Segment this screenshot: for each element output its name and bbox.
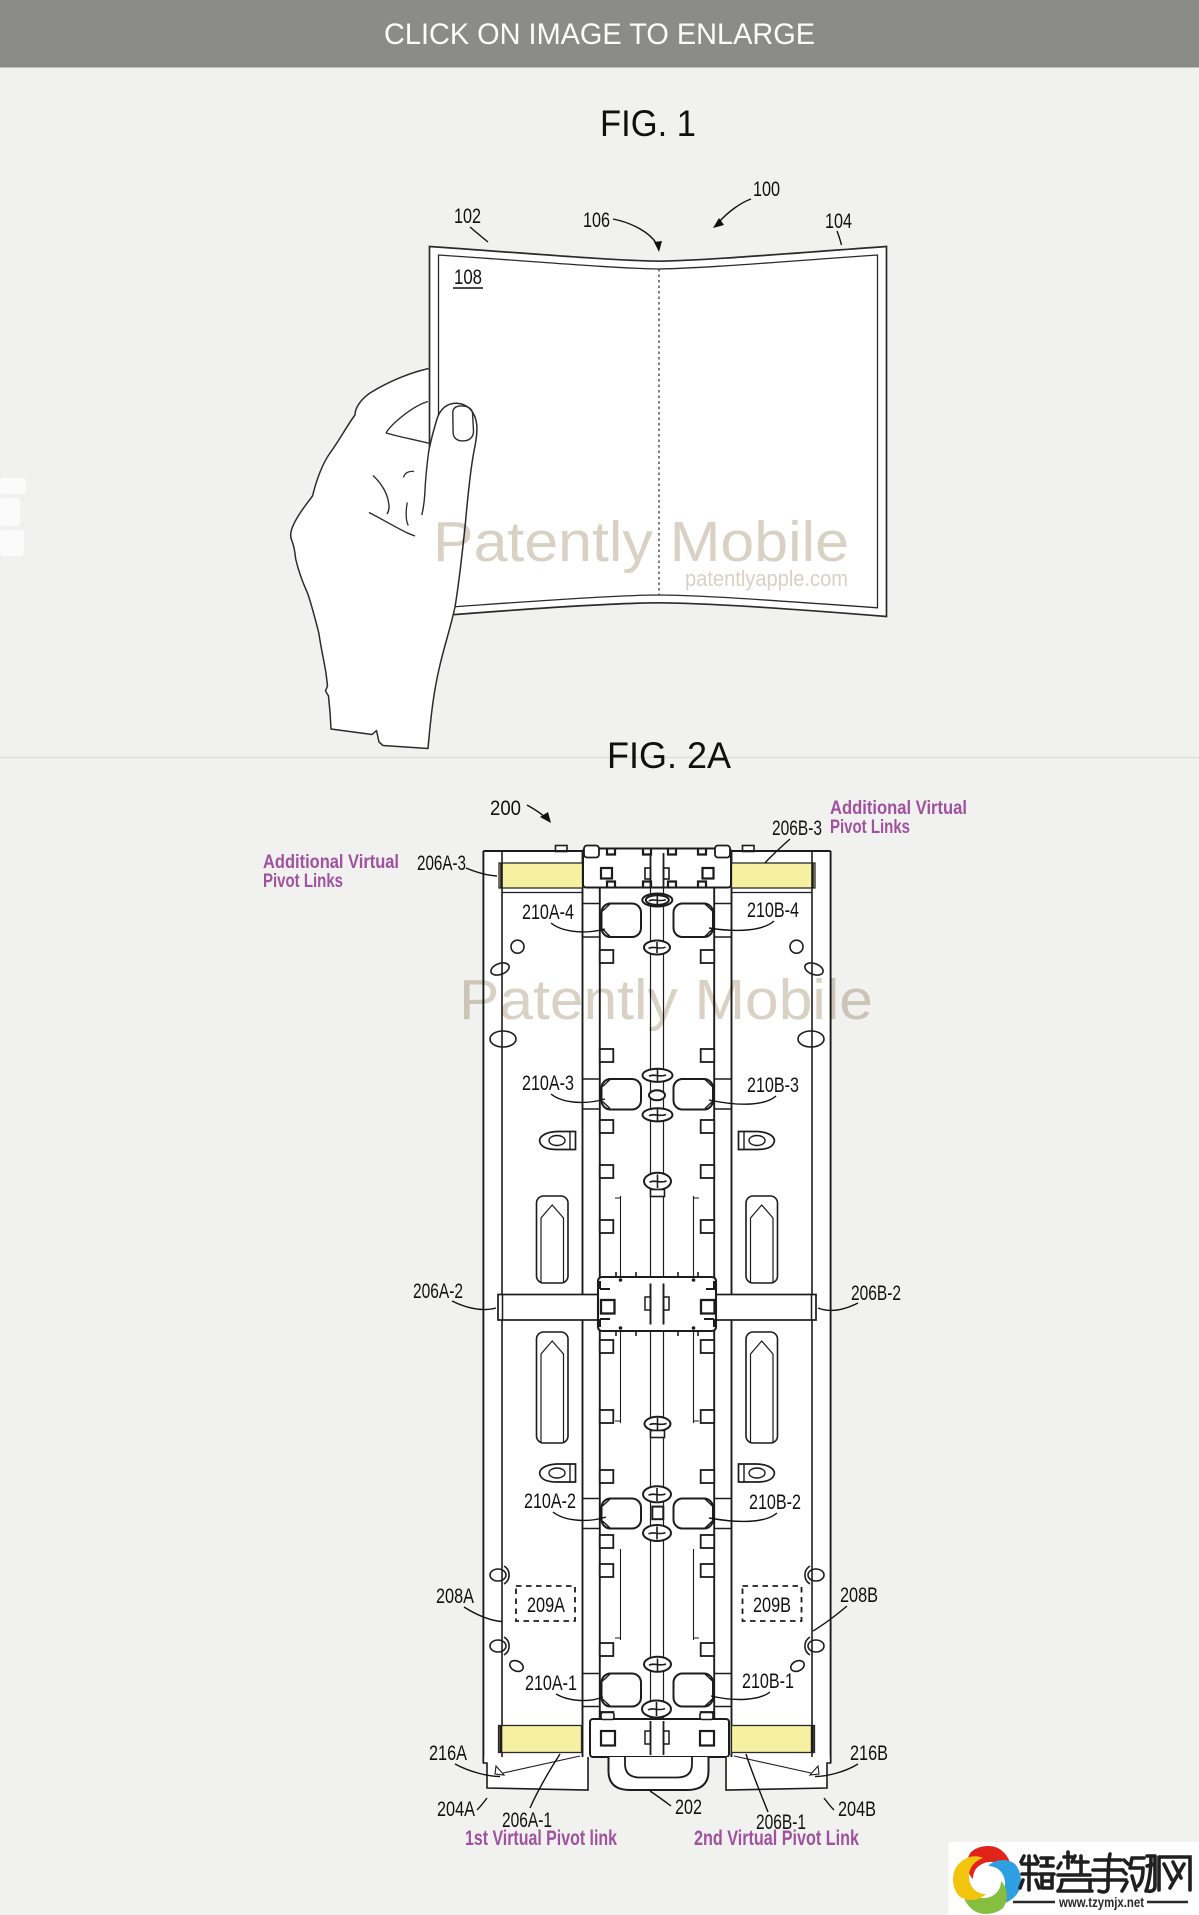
svg-text:209A: 209A: [527, 1594, 565, 1617]
svg-text:FIG. 1: FIG. 1: [600, 103, 696, 144]
svg-text:206B-2: 206B-2: [851, 1282, 901, 1305]
svg-text:www.tzymjx.net: www.tzymjx.net: [1058, 1895, 1144, 1910]
svg-text:patentlyapple.com: patentlyapple.com: [685, 566, 848, 591]
svg-text:210A-3: 210A-3: [522, 1072, 574, 1095]
svg-text:Patently Mobile: Patently Mobile: [459, 968, 873, 1032]
svg-text:100: 100: [753, 178, 780, 201]
svg-text:106: 106: [583, 209, 610, 232]
svg-text:206B-3: 206B-3: [772, 817, 822, 840]
svg-text:208A: 208A: [436, 1585, 474, 1608]
svg-text:200: 200: [490, 797, 521, 820]
svg-text:210B-3: 210B-3: [747, 1074, 799, 1097]
svg-text:206A-2: 206A-2: [413, 1280, 463, 1303]
svg-text:108: 108: [454, 266, 482, 289]
svg-text:210B-1: 210B-1: [742, 1670, 794, 1693]
svg-text:210B-2: 210B-2: [749, 1491, 801, 1514]
svg-text:209B: 209B: [753, 1594, 791, 1617]
svg-text:Pivot Links: Pivot Links: [830, 817, 910, 838]
svg-text:2nd Virtual Pivot Link: 2nd Virtual Pivot Link: [694, 1827, 859, 1850]
svg-text:204A: 204A: [437, 1798, 475, 1821]
svg-text:1st Virtual Pivot link: 1st Virtual Pivot link: [465, 1827, 617, 1850]
svg-text:FIG. 2A: FIG. 2A: [607, 735, 731, 776]
svg-text:210B-4: 210B-4: [747, 899, 799, 922]
svg-text:210A-4: 210A-4: [522, 901, 574, 924]
svg-text:216A: 216A: [429, 1742, 467, 1765]
svg-text:210A-1: 210A-1: [525, 1672, 577, 1695]
svg-text:104: 104: [825, 210, 852, 233]
svg-text:Pivot Links: Pivot Links: [263, 871, 343, 892]
svg-text:216B: 216B: [850, 1742, 888, 1765]
svg-text:102: 102: [454, 205, 481, 228]
svg-text:CLICK ON IMAGE TO ENLARGE: CLICK ON IMAGE TO ENLARGE: [384, 18, 815, 51]
svg-text:208B: 208B: [840, 1584, 878, 1607]
svg-text:202: 202: [675, 1796, 702, 1819]
svg-text:Patently Mobile: Patently Mobile: [433, 510, 849, 574]
svg-text:Additional Virtual: Additional Virtual: [263, 852, 399, 873]
svg-text:206A-3: 206A-3: [417, 852, 466, 875]
svg-text:Additional Virtual: Additional Virtual: [830, 798, 967, 819]
svg-text:210A-2: 210A-2: [524, 1490, 576, 1513]
svg-text:204B: 204B: [838, 1798, 876, 1821]
